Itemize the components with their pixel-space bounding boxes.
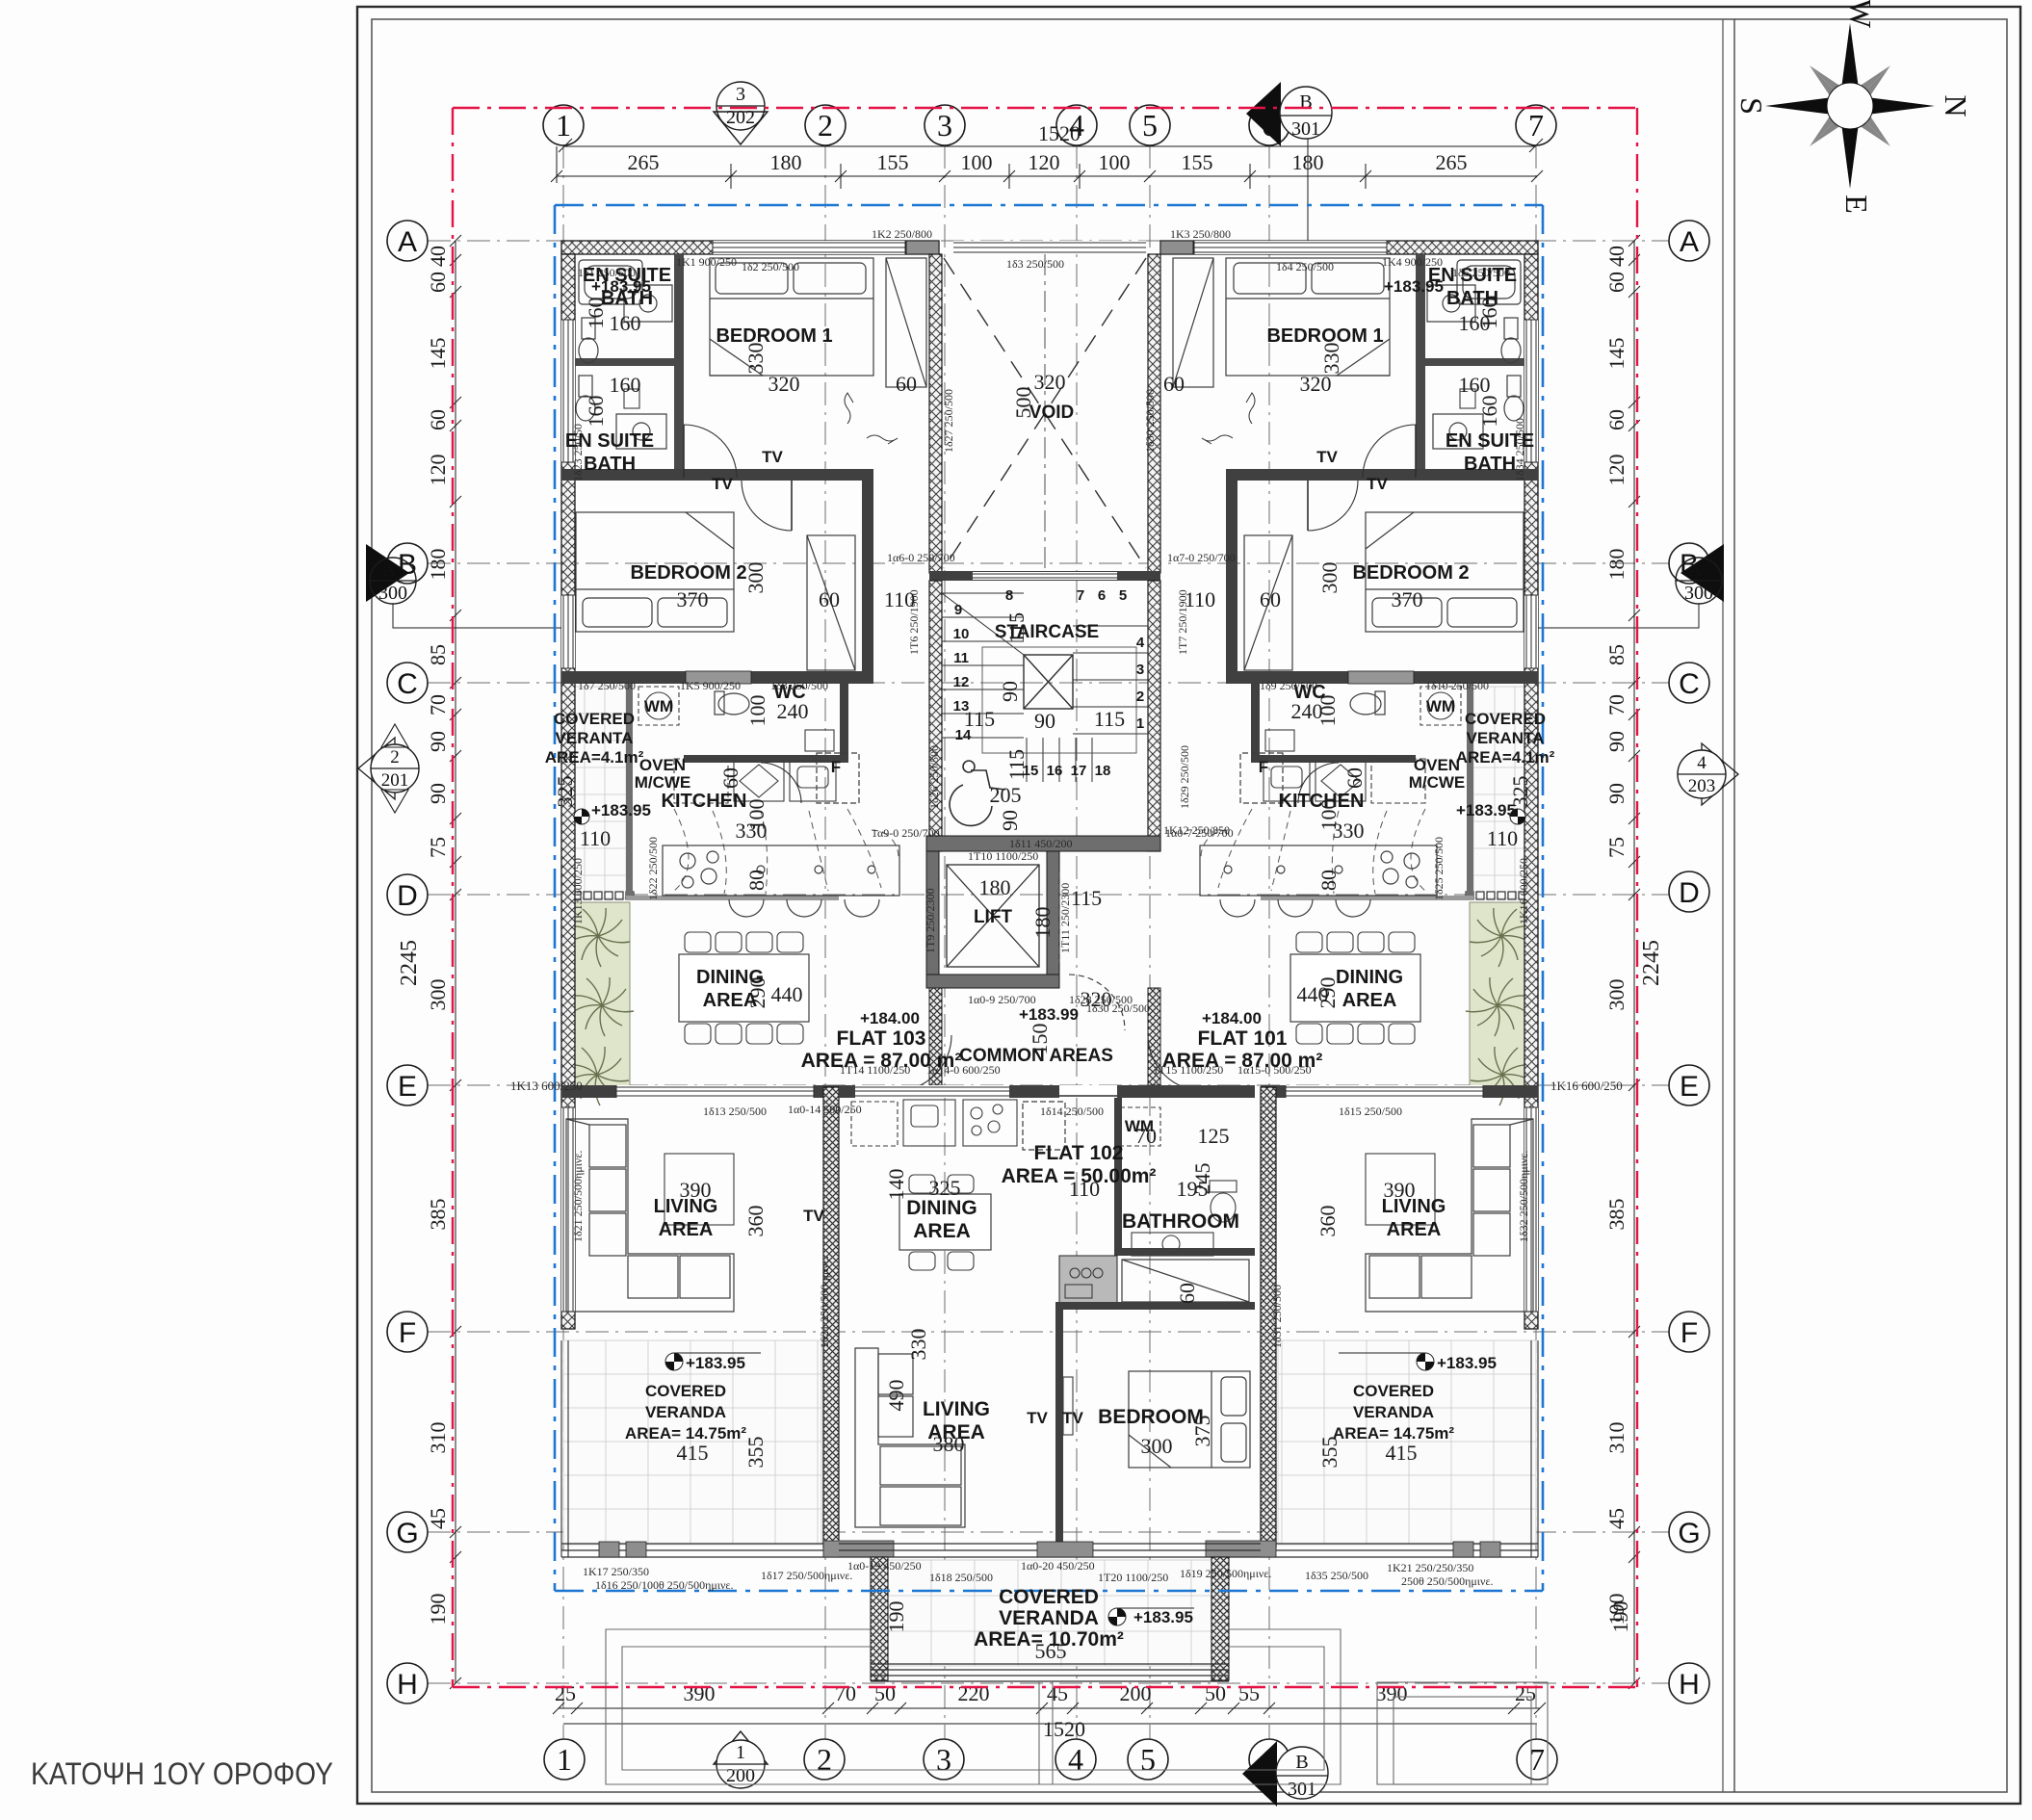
svg-text:1α0-14 500/250: 1α0-14 500/250 (788, 1103, 862, 1116)
svg-text:120: 120 (1029, 150, 1060, 174)
svg-text:BEDROOM 2: BEDROOM 2 (1352, 562, 1469, 584)
svg-text:300: 300 (426, 979, 450, 1011)
svg-text:1: 1 (1136, 715, 1144, 732)
svg-text:60: 60 (819, 587, 840, 611)
svg-text:1δ8 250/500: 1δ8 250/500 (770, 679, 828, 692)
svg-text:60: 60 (896, 372, 917, 396)
svg-text:1K3 250/800: 1K3 250/800 (1170, 227, 1231, 241)
svg-text:1α0-20 450/250: 1α0-20 450/250 (1021, 1559, 1095, 1573)
svg-text:1δ1 250/500: 1δ1 250/500 (578, 266, 636, 279)
svg-text:TV: TV (1367, 475, 1388, 493)
svg-text:90: 90 (1034, 709, 1055, 733)
svg-text:125: 125 (1198, 1124, 1230, 1148)
svg-text:80: 80 (744, 870, 769, 891)
svg-text:375: 375 (1190, 1416, 1214, 1447)
svg-text:1: 1 (557, 1742, 572, 1777)
svg-text:201: 201 (381, 770, 409, 791)
svg-text:55: 55 (1238, 1681, 1260, 1705)
svg-text:180: 180 (1292, 150, 1324, 174)
svg-text:1δ5 250/500: 1δ5 250/500 (1452, 266, 1510, 279)
svg-text:240: 240 (777, 699, 809, 723)
svg-text:160: 160 (1477, 298, 1501, 329)
svg-text:50: 50 (874, 1681, 896, 1705)
svg-text:25: 25 (1515, 1681, 1536, 1705)
svg-text:M/CWE: M/CWE (1409, 773, 1466, 792)
svg-text:1δ16 250/100θ 250/500ημινε.: 1δ16 250/100θ 250/500ημινε. (595, 1578, 733, 1592)
svg-text:1α0-9 250/700: 1α0-9 250/700 (968, 993, 1036, 1006)
svg-text:90: 90 (1604, 783, 1628, 804)
svg-text:300: 300 (1684, 583, 1713, 604)
svg-text:12: 12 (953, 674, 970, 690)
svg-text:15: 15 (1023, 763, 1039, 779)
svg-text:A: A (1689, 560, 1702, 580)
svg-text:5: 5 (1142, 108, 1158, 143)
svg-text:60: 60 (1163, 372, 1185, 396)
svg-text:+184.00: +184.00 (1202, 1009, 1262, 1027)
svg-text:325: 325 (1508, 776, 1532, 808)
svg-text:8: 8 (1005, 587, 1013, 604)
svg-text:415: 415 (677, 1441, 709, 1465)
svg-text:1δ35 250/500: 1δ35 250/500 (1305, 1569, 1368, 1582)
svg-text:115: 115 (1004, 612, 1029, 643)
svg-text:2: 2 (818, 108, 833, 143)
svg-text:1δ10 250/500: 1δ10 250/500 (1425, 679, 1489, 692)
svg-text:F: F (399, 1317, 416, 1349)
svg-text:VERANTA: VERANTA (1467, 729, 1545, 747)
svg-text:A: A (383, 560, 396, 580)
svg-text:OVEN: OVEN (1414, 756, 1460, 774)
svg-text:155: 155 (1182, 150, 1213, 174)
svg-text:+183.99: +183.99 (1019, 1005, 1079, 1024)
svg-text:320: 320 (1034, 370, 1066, 394)
svg-text:13: 13 (953, 698, 970, 715)
svg-text:110: 110 (580, 826, 611, 850)
svg-text:18: 18 (1095, 763, 1111, 779)
svg-text:490: 490 (884, 1380, 908, 1412)
svg-text:1δ22 250/500: 1δ22 250/500 (646, 837, 660, 900)
svg-text:220: 220 (958, 1681, 990, 1705)
svg-text:145: 145 (1604, 338, 1628, 370)
svg-text:C: C (1679, 668, 1700, 700)
svg-text:325: 325 (553, 776, 577, 808)
svg-text:1K2 250/800: 1K2 250/800 (872, 227, 932, 241)
svg-text:355: 355 (743, 1437, 768, 1469)
svg-text:245: 245 (1190, 1163, 1214, 1195)
svg-text:1T9 250/2300: 1T9 250/2300 (924, 888, 937, 953)
svg-text:85: 85 (426, 644, 450, 665)
svg-text:70: 70 (835, 1681, 856, 1705)
svg-text:290: 290 (1316, 977, 1340, 1009)
svg-text:1T10 1100/250: 1T10 1100/250 (968, 849, 1038, 863)
svg-text:FLAT 101: FLAT 101 (1198, 1027, 1288, 1050)
svg-text:14: 14 (955, 727, 972, 743)
svg-text:OVEN: OVEN (639, 756, 686, 774)
svg-text:1T14 1100/250: 1T14 1100/250 (840, 1063, 910, 1077)
svg-text:75: 75 (1604, 837, 1628, 858)
svg-text:3: 3 (937, 108, 952, 143)
svg-text:5: 5 (1140, 1742, 1156, 1777)
svg-text:LIVING: LIVING (923, 1398, 990, 1420)
svg-text:110: 110 (1487, 826, 1518, 850)
svg-text:1α7-0 250/700: 1α7-0 250/700 (1167, 551, 1236, 564)
svg-text:FLAT 103: FLAT 103 (837, 1027, 926, 1050)
svg-text:1δ14 250/500: 1δ14 250/500 (1040, 1105, 1104, 1118)
svg-text:40: 40 (426, 246, 450, 267)
svg-text:2: 2 (817, 1742, 832, 1777)
svg-text:1δ2 250/500: 1δ2 250/500 (742, 260, 799, 273)
svg-text:60: 60 (1604, 409, 1628, 430)
svg-text:120: 120 (1604, 455, 1628, 486)
svg-text:+183.95: +183.95 (591, 277, 651, 296)
svg-text:1K13 600/250: 1K13 600/250 (571, 858, 585, 924)
svg-text:1: 1 (736, 1742, 745, 1763)
svg-text:100: 100 (1316, 695, 1340, 727)
svg-text:+183.95: +183.95 (1456, 801, 1516, 819)
svg-text:310: 310 (426, 1422, 450, 1454)
svg-text:1δ31 250/500: 1δ31 250/500 (1270, 1285, 1284, 1348)
svg-text:1δ25 250/500: 1δ25 250/500 (1432, 837, 1446, 900)
svg-text:AREA: AREA (1387, 1219, 1442, 1240)
svg-text:100: 100 (1099, 150, 1131, 174)
svg-text:AREA=4.1m²: AREA=4.1m² (1456, 748, 1555, 767)
svg-text:1K1 900/250: 1K1 900/250 (676, 255, 737, 269)
svg-text:TV: TV (762, 448, 783, 466)
svg-text:TV: TV (1316, 448, 1338, 466)
svg-text:4: 4 (1697, 753, 1706, 773)
svg-text:M/CWE: M/CWE (635, 773, 691, 792)
svg-text:301: 301 (1291, 118, 1320, 140)
svg-text:300: 300 (743, 562, 768, 594)
svg-text:1K16 600/250: 1K16 600/250 (1517, 858, 1530, 924)
svg-text:202: 202 (726, 107, 755, 128)
svg-text:140: 140 (884, 1169, 908, 1201)
svg-text:265: 265 (628, 150, 660, 174)
svg-text:4: 4 (1136, 635, 1145, 651)
svg-text:45: 45 (1047, 1681, 1068, 1705)
svg-text:6: 6 (1098, 587, 1106, 604)
svg-text:C: C (397, 668, 418, 700)
svg-text:2: 2 (390, 747, 400, 767)
svg-text:180: 180 (426, 549, 450, 581)
svg-text:1T6 250/1900: 1T6 250/1900 (907, 589, 921, 655)
svg-text:60: 60 (1175, 1283, 1199, 1304)
svg-text:1δ15 250/500: 1δ15 250/500 (1339, 1105, 1402, 1118)
svg-text:1δ11 450/200: 1δ11 450/200 (1009, 837, 1073, 850)
svg-text:330: 330 (743, 343, 768, 375)
svg-text:110: 110 (1069, 1177, 1100, 1201)
svg-text:145: 145 (426, 338, 450, 370)
svg-text:90: 90 (998, 810, 1022, 831)
svg-text:G: G (1678, 1518, 1700, 1549)
svg-text:AREA: AREA (659, 1219, 714, 1240)
svg-text:A: A (398, 226, 417, 258)
svg-text:11: 11 (953, 650, 969, 666)
svg-text:TV: TV (1027, 1409, 1048, 1427)
svg-text:300: 300 (1317, 562, 1342, 594)
svg-text:100: 100 (745, 695, 769, 727)
svg-text:160: 160 (610, 373, 641, 397)
svg-text:90: 90 (426, 731, 450, 752)
svg-text:70: 70 (1135, 1124, 1157, 1148)
svg-text:1δ32 250/500ημινε.: 1δ32 250/500ημινε. (1517, 1151, 1530, 1242)
svg-text:1T20 1100/250: 1T20 1100/250 (1098, 1571, 1168, 1584)
svg-text:1δ30 250/500: 1δ30 250/500 (1086, 1001, 1150, 1015)
svg-text:+184.00: +184.00 (860, 1009, 920, 1027)
svg-text:440: 440 (771, 982, 803, 1006)
svg-text:320: 320 (769, 372, 800, 396)
svg-text:VERANDA: VERANDA (999, 1607, 1099, 1629)
svg-text:TV: TV (1062, 1409, 1083, 1427)
svg-text:BATH: BATH (1464, 454, 1516, 475)
svg-text:7: 7 (1528, 108, 1544, 143)
svg-text:1α15-0 500/250: 1α15-0 500/250 (1237, 1063, 1312, 1077)
svg-text:+183.95: +183.95 (591, 801, 651, 819)
svg-text:2: 2 (1136, 689, 1144, 705)
svg-text:TV: TV (712, 475, 733, 493)
svg-text:390: 390 (684, 1681, 716, 1705)
svg-text:+183.95: +183.95 (1437, 1354, 1497, 1372)
svg-text:325: 325 (929, 1176, 961, 1200)
svg-text:60: 60 (1604, 272, 1628, 293)
svg-text:330: 330 (1319, 343, 1343, 375)
svg-text:AREA: AREA (1342, 990, 1397, 1011)
svg-text:565: 565 (1035, 1639, 1067, 1663)
svg-text:VERANDA: VERANDA (645, 1403, 726, 1421)
svg-text:160: 160 (1477, 396, 1501, 428)
svg-text:AREA=4.1m²: AREA=4.1m² (545, 748, 644, 767)
svg-text:+183.95: +183.95 (686, 1354, 745, 1372)
svg-text:1δ21 250/500ημινε.: 1δ21 250/500ημινε. (571, 1151, 585, 1242)
svg-text:385: 385 (426, 1199, 450, 1231)
svg-text:160: 160 (610, 311, 641, 335)
svg-text:N: N (1939, 94, 1973, 117)
svg-text:1δ23 250/50: 1δ23 250/50 (571, 424, 585, 481)
svg-text:1621 250/500ημινε.: 1621 250/500ημινε. (818, 1256, 831, 1348)
svg-text:60: 60 (1342, 767, 1367, 789)
svg-text:360: 360 (1316, 1206, 1340, 1237)
svg-text:45: 45 (426, 1508, 450, 1529)
svg-text:120: 120 (426, 455, 450, 486)
svg-text:25: 25 (555, 1681, 576, 1705)
svg-text:1α9-0 250/700: 1α9-0 250/700 (872, 826, 940, 840)
svg-text:D: D (1679, 877, 1700, 909)
svg-text:380: 380 (933, 1432, 965, 1456)
svg-text:3: 3 (736, 84, 745, 105)
svg-text:290: 290 (745, 977, 769, 1009)
svg-text:1T7 250/1900: 1T7 250/1900 (1176, 589, 1189, 655)
svg-text:1δ13 250/500: 1δ13 250/500 (703, 1105, 767, 1118)
svg-text:WM: WM (1426, 697, 1455, 715)
svg-text:115: 115 (1071, 886, 1102, 910)
svg-text:BATH: BATH (584, 454, 636, 475)
svg-text:10: 10 (953, 626, 970, 642)
svg-text:160: 160 (584, 396, 608, 428)
svg-text:390: 390 (1384, 1178, 1416, 1202)
svg-text:355: 355 (1317, 1437, 1342, 1469)
svg-text:60: 60 (426, 272, 450, 293)
svg-text:390: 390 (680, 1178, 712, 1202)
svg-text:190: 190 (426, 1594, 450, 1625)
svg-text:G: G (396, 1518, 418, 1549)
svg-text:1δ30 250/500: 1δ30 250/500 (1143, 389, 1157, 453)
svg-text:1δ9 250/500: 1δ9 250/500 (1260, 679, 1317, 692)
svg-text:60: 60 (426, 409, 450, 430)
svg-text:AREA: AREA (913, 1220, 971, 1242)
svg-text:VERANTA: VERANTA (556, 729, 634, 747)
svg-text:370: 370 (677, 587, 709, 611)
svg-text:2245: 2245 (1639, 940, 1664, 986)
svg-text:COVERED: COVERED (999, 1586, 1099, 1608)
svg-text:ΚΑΤΟΨΗ 1ΟΥ ΟΡΟΦΟΥ: ΚΑΤΟΨΗ 1ΟΥ ΟΡΟΦΟΥ (31, 1756, 333, 1791)
svg-text:1δ17 250/500ημινε.: 1δ17 250/500ημινε. (761, 1569, 852, 1582)
svg-text:50: 50 (1205, 1681, 1226, 1705)
svg-text:155: 155 (877, 150, 909, 174)
svg-text:100: 100 (1316, 799, 1341, 831)
svg-text:301: 301 (1288, 1779, 1316, 1800)
svg-text:370: 370 (1392, 587, 1423, 611)
svg-text:1K12 250/850: 1K12 250/850 (1163, 823, 1230, 837)
svg-text:DINING: DINING (906, 1197, 977, 1219)
svg-text:90: 90 (998, 681, 1022, 702)
svg-text:1α6-0 250/700: 1α6-0 250/700 (887, 551, 955, 564)
svg-text:1K13 600/250: 1K13 600/250 (510, 1079, 583, 1093)
svg-text:90: 90 (1604, 731, 1628, 752)
svg-text:VERANDA: VERANDA (1353, 1403, 1434, 1421)
svg-text:+183.95: +183.95 (1133, 1608, 1193, 1626)
svg-text:330: 330 (906, 1329, 930, 1361)
svg-text:1δ34 250/500: 1δ34 250/500 (1513, 418, 1526, 481)
svg-text:390: 390 (1376, 1681, 1408, 1705)
svg-text:180: 180 (1604, 549, 1628, 581)
svg-text:180: 180 (979, 875, 1011, 899)
svg-text:E: E (1680, 1071, 1699, 1103)
svg-text:80: 80 (1316, 870, 1341, 891)
svg-text:1K4 900/250: 1K4 900/250 (1382, 255, 1443, 269)
svg-text:5: 5 (1119, 587, 1127, 604)
svg-text:16: 16 (1047, 763, 1063, 779)
svg-text:COVERED: COVERED (554, 710, 635, 728)
svg-text:1δ3 250/500: 1δ3 250/500 (1006, 257, 1064, 271)
svg-text:40: 40 (1604, 246, 1628, 267)
svg-text:LIFT: LIFT (974, 907, 1012, 927)
svg-text:60: 60 (1260, 587, 1281, 611)
svg-text:300: 300 (1604, 979, 1628, 1011)
svg-text:1δ4 250/500: 1δ4 250/500 (1276, 260, 1334, 273)
svg-text:BEDROOM: BEDROOM (1098, 1406, 1204, 1428)
svg-text:160: 160 (1459, 373, 1491, 397)
svg-text:BATHROOM: BATHROOM (1122, 1210, 1239, 1233)
svg-text:W: W (1843, 0, 1878, 29)
svg-text:265: 265 (1436, 150, 1468, 174)
svg-text:H: H (397, 1669, 418, 1701)
svg-text:1δ29 250/500: 1δ29 250/500 (1178, 745, 1191, 809)
svg-text:190: 190 (884, 1601, 908, 1633)
svg-text:1δ27 250/500: 1δ27 250/500 (942, 389, 955, 453)
svg-text:F: F (831, 758, 841, 776)
svg-text:1520: 1520 (1043, 1717, 1085, 1741)
svg-text:1K5 900/250: 1K5 900/250 (680, 679, 741, 692)
svg-text:1: 1 (556, 108, 571, 143)
svg-text:F: F (1259, 758, 1268, 776)
svg-text:85: 85 (1604, 644, 1628, 665)
svg-text:1α0-19 450/250: 1α0-19 450/250 (847, 1559, 922, 1573)
svg-text:F: F (1680, 1317, 1698, 1349)
svg-text:1T15 1100/250: 1T15 1100/250 (1153, 1063, 1223, 1077)
svg-text:WM: WM (644, 697, 673, 715)
svg-text:1δ18 250/500: 1δ18 250/500 (929, 1571, 993, 1584)
svg-text:17: 17 (1071, 763, 1087, 779)
svg-text:200: 200 (726, 1765, 755, 1786)
svg-text:E: E (1839, 195, 1874, 214)
svg-text:100: 100 (961, 150, 993, 174)
svg-text:COVERED: COVERED (1353, 1382, 1434, 1400)
svg-text:500: 500 (1011, 387, 1035, 419)
svg-text:320: 320 (1300, 372, 1332, 396)
svg-text:60: 60 (718, 767, 742, 789)
svg-text:150: 150 (1028, 1024, 1052, 1055)
svg-text:90: 90 (426, 783, 450, 804)
svg-text:300: 300 (1141, 1434, 1173, 1458)
svg-text:A: A (1680, 226, 1699, 258)
svg-text:FLAT 102: FLAT 102 (1034, 1142, 1124, 1164)
svg-text:3: 3 (1136, 662, 1144, 678)
svg-text:415: 415 (1386, 1441, 1418, 1465)
svg-text:45: 45 (1604, 1508, 1628, 1529)
svg-text:KITCHEN: KITCHEN (662, 791, 747, 812)
svg-text:1δ26 250/500: 1δ26 250/500 (927, 745, 941, 809)
svg-text:4: 4 (1068, 1742, 1083, 1777)
svg-text:1δ7 250/500: 1δ7 250/500 (578, 679, 636, 692)
svg-text:9: 9 (954, 602, 962, 618)
svg-text:1520: 1520 (1038, 121, 1081, 145)
svg-text:70: 70 (426, 694, 450, 715)
svg-text:1δ19 250/500ημινε.: 1δ19 250/500ημινε. (1180, 1567, 1271, 1580)
svg-text:1K17 250/350: 1K17 250/350 (583, 1565, 649, 1578)
svg-text:1α14-0 600/250: 1α14-0 600/250 (926, 1063, 1001, 1077)
svg-text:H: H (1679, 1669, 1700, 1701)
svg-text:BEDROOM 1: BEDROOM 1 (716, 325, 832, 347)
svg-text:S: S (1734, 97, 1769, 115)
svg-text:7: 7 (1077, 587, 1084, 604)
svg-text:3: 3 (936, 1742, 951, 1777)
svg-text:DINING: DINING (1336, 967, 1403, 988)
svg-text:310: 310 (1604, 1422, 1628, 1454)
svg-text:115: 115 (1094, 707, 1125, 731)
svg-text:190: 190 (1608, 1601, 1632, 1633)
svg-text:180: 180 (770, 150, 802, 174)
svg-text:300: 300 (378, 583, 407, 604)
svg-text:1K21 250/250/350: 1K21 250/250/350 (1387, 1561, 1473, 1574)
svg-text:205: 205 (990, 783, 1022, 807)
svg-text:BEDROOM 2: BEDROOM 2 (630, 562, 746, 584)
svg-text:+183.95: +183.95 (1384, 277, 1444, 296)
svg-text:70: 70 (1604, 694, 1628, 715)
svg-text:385: 385 (1604, 1199, 1628, 1231)
svg-text:250θ 250/500ημινε.: 250θ 250/500ημινε. (1401, 1574, 1493, 1588)
svg-text:TV: TV (803, 1207, 824, 1225)
svg-text:75: 75 (426, 837, 450, 858)
svg-text:100: 100 (744, 799, 769, 831)
svg-text:VOID: VOID (1029, 403, 1074, 423)
svg-text:160: 160 (584, 298, 608, 329)
svg-text:D: D (397, 880, 418, 912)
svg-text:360: 360 (743, 1206, 768, 1237)
svg-text:200: 200 (1120, 1681, 1152, 1705)
svg-text:B: B (1299, 91, 1312, 113)
svg-text:COVERED: COVERED (1465, 710, 1546, 728)
svg-text:COVERED: COVERED (645, 1382, 726, 1400)
svg-text:1T11 250/2300: 1T11 250/2300 (1058, 883, 1072, 953)
